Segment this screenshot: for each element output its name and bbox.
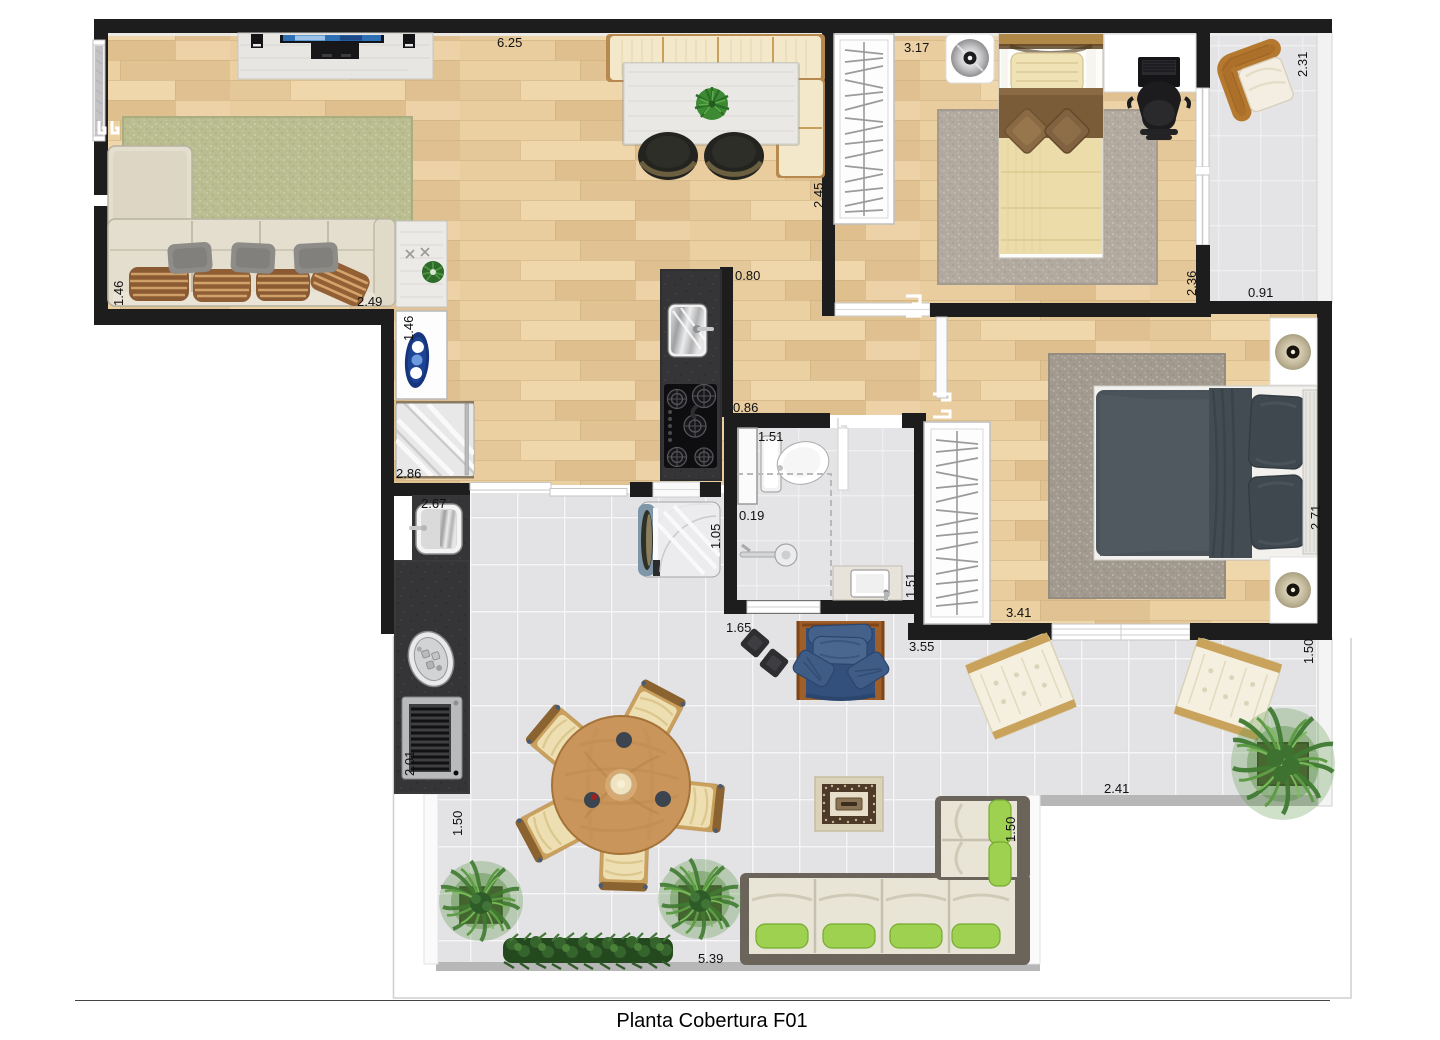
svg-text:2.36: 2.36 (1184, 271, 1199, 296)
svg-text:1.46: 1.46 (401, 316, 416, 341)
svg-text:2.71: 2.71 (1308, 505, 1323, 530)
svg-text:5.39: 5.39 (698, 951, 723, 966)
svg-text:2.31: 2.31 (1295, 52, 1310, 77)
svg-text:1.51: 1.51 (758, 429, 783, 444)
svg-text:1.51: 1.51 (903, 573, 918, 598)
svg-text:2.45: 2.45 (811, 183, 826, 208)
svg-text:3.17: 3.17 (904, 40, 929, 55)
svg-text:0.86: 0.86 (733, 400, 758, 415)
svg-text:3.55: 3.55 (909, 639, 934, 654)
svg-text:Planta Cobertura F01: Planta Cobertura F01 (616, 1010, 807, 1032)
svg-text:1.50: 1.50 (1301, 639, 1316, 664)
svg-text:2.01: 2.01 (402, 751, 417, 776)
svg-text:2.41: 2.41 (1104, 781, 1129, 796)
svg-text:1.50: 1.50 (1003, 817, 1018, 842)
svg-text:2.86: 2.86 (396, 466, 421, 481)
svg-text:1.65: 1.65 (726, 620, 751, 635)
svg-text:1.05: 1.05 (708, 524, 723, 549)
svg-text:0.80: 0.80 (735, 268, 760, 283)
svg-text:0.91: 0.91 (1248, 285, 1273, 300)
svg-text:2.67: 2.67 (421, 496, 446, 511)
svg-text:0.19: 0.19 (739, 508, 764, 523)
svg-text:1.50: 1.50 (450, 811, 465, 836)
svg-text:1.46: 1.46 (111, 281, 126, 306)
svg-text:2.49: 2.49 (357, 294, 382, 309)
svg-text:6.25: 6.25 (497, 35, 522, 50)
svg-text:3.41: 3.41 (1006, 605, 1031, 620)
